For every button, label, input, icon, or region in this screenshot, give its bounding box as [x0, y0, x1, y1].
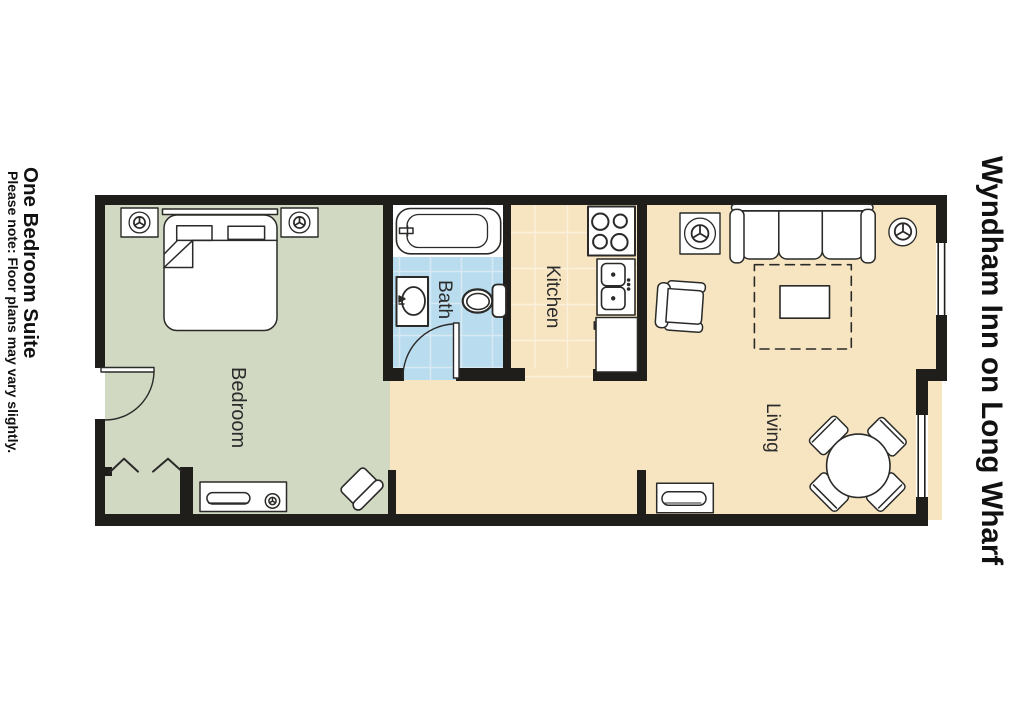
svg-text:Bedroom: Bedroom	[227, 367, 249, 448]
svg-text:Living: Living	[762, 403, 783, 453]
svg-text:Kitchen: Kitchen	[542, 265, 563, 328]
svg-text:Bath: Bath	[434, 280, 455, 319]
